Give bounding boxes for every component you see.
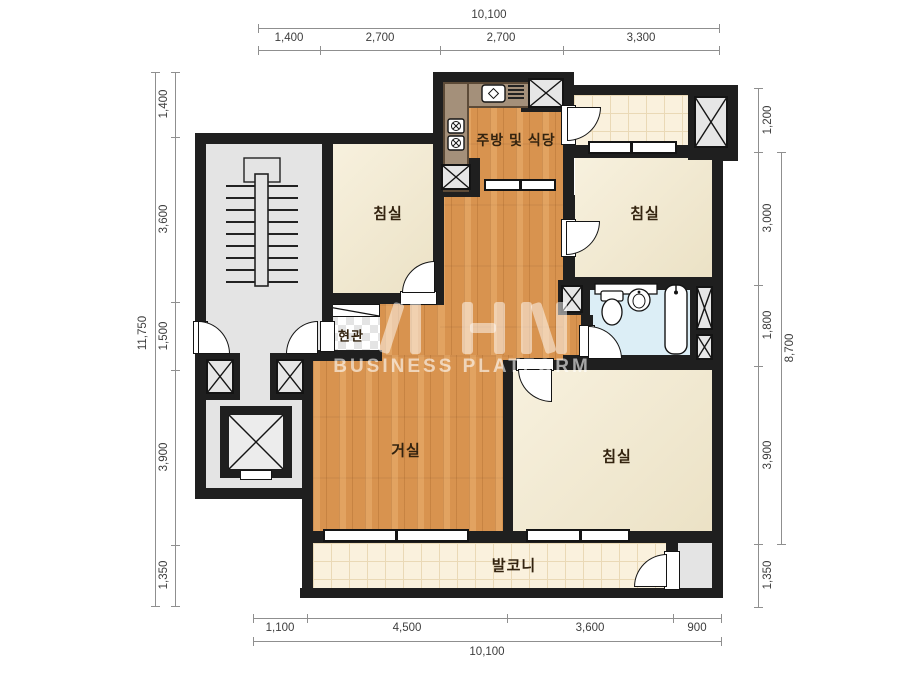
- wall: [712, 150, 723, 598]
- dim-top-2: 2,700: [487, 32, 516, 44]
- vent-icon: [508, 85, 524, 101]
- dim-bottom-3: 900: [687, 622, 706, 634]
- dimension-line: [758, 88, 759, 608]
- dim-right-3: 3,900: [762, 441, 774, 470]
- balcony-floor: [313, 543, 666, 588]
- dim-right-0: 1,200: [762, 106, 774, 135]
- dim-left-1: 3,600: [158, 205, 170, 234]
- dimension-line: [258, 28, 720, 29]
- bathtub-icon: [665, 285, 687, 354]
- dim-top-1: 2,700: [366, 32, 395, 44]
- balcony-label: 발코니: [492, 555, 536, 576]
- window: [396, 529, 469, 542]
- watermark-logo-stroke: [470, 323, 496, 333]
- stairs-icon: [224, 152, 300, 292]
- dim-bottom-2: 3,600: [576, 622, 605, 634]
- dim-bottom-0: 1,100: [266, 622, 295, 634]
- stove-icon: [447, 118, 465, 152]
- dim-left-4: 1,350: [158, 561, 170, 590]
- tick: [563, 46, 564, 55]
- bedroom-top-right-label: 침실: [630, 203, 660, 224]
- kitchen-label: 주방 및 식당: [476, 130, 555, 150]
- dimension-line: [253, 641, 722, 642]
- tick: [754, 544, 763, 545]
- dim-right-2: 1,800: [762, 311, 774, 340]
- dim-bottom-1: 4,500: [393, 622, 422, 634]
- tick: [171, 545, 180, 546]
- shaft-x-icon: [441, 164, 471, 190]
- ac-unit-floor: [678, 543, 712, 588]
- tick: [171, 302, 180, 303]
- tick: [440, 46, 441, 55]
- tick: [320, 46, 321, 55]
- shaft-x-icon: [696, 286, 713, 330]
- window: [588, 141, 632, 154]
- kitchen-sink-icon: [481, 84, 506, 103]
- dim-left-0: 1,400: [158, 90, 170, 119]
- dimension-line: [781, 152, 782, 544]
- window: [631, 141, 677, 154]
- wall: [322, 133, 444, 144]
- dim-bottom-total: 10,100: [469, 646, 504, 658]
- window: [580, 529, 630, 542]
- dim-left-2: 1,500: [158, 322, 170, 351]
- tick: [721, 614, 722, 623]
- wall: [563, 195, 575, 221]
- dim-right-1: 3,000: [762, 204, 774, 233]
- tick: [754, 152, 763, 153]
- door-threshold: [320, 321, 335, 352]
- dimension-line: [258, 50, 720, 51]
- watermark-logo-stroke: [494, 302, 505, 354]
- bedroom-bottom-label: 침실: [602, 446, 632, 467]
- entrance-label: 현관: [338, 326, 364, 345]
- tick: [253, 614, 254, 623]
- tick: [258, 46, 259, 55]
- shaft-x-icon: [206, 359, 234, 394]
- dim-top-3: 3,300: [627, 32, 656, 44]
- tick: [777, 544, 786, 545]
- tick: [253, 637, 254, 646]
- watermark-text: BUSINESS PLATFORM: [333, 356, 591, 378]
- floor-plan: BUSINESS PLATFORM 주방 및 식당 침실 침실 현관 거실 침실…: [0, 0, 923, 676]
- wall: [300, 588, 723, 598]
- window: [526, 529, 581, 542]
- bedroom-top-left-label: 침실: [373, 203, 403, 224]
- tick: [719, 24, 720, 33]
- watermark-logo-stroke: [410, 302, 421, 354]
- tick: [754, 366, 763, 367]
- living-room-label: 거실: [391, 440, 421, 461]
- tick: [258, 24, 259, 33]
- tick: [307, 614, 308, 623]
- tick: [754, 88, 763, 89]
- tick: [721, 637, 722, 646]
- tick: [754, 285, 763, 286]
- dim-top-total: 10,100: [471, 9, 506, 21]
- watermark-logo-stroke: [556, 302, 567, 354]
- dim-top-0: 1,400: [275, 32, 304, 44]
- tick: [673, 614, 674, 623]
- kitchen-pass-opening: [484, 179, 521, 191]
- tick: [777, 152, 786, 153]
- dimension-line: [155, 72, 156, 607]
- toilet-bowl-icon: [602, 299, 622, 325]
- tick: [507, 614, 508, 623]
- watermark-logo-stroke: [521, 302, 532, 354]
- shaft-x-icon: [528, 78, 564, 108]
- dimension-line: [175, 72, 176, 607]
- shaft-x-icon: [696, 334, 713, 360]
- bathroom-fixtures: [593, 283, 697, 357]
- tick: [171, 606, 180, 607]
- dim-right-total: 8,700: [784, 334, 796, 363]
- shaft-x-icon: [694, 96, 728, 148]
- dim-right-4: 1,350: [762, 561, 774, 590]
- wall: [322, 293, 402, 304]
- tick: [171, 137, 180, 138]
- tick: [719, 46, 720, 55]
- window: [323, 529, 397, 542]
- shaft-x-icon: [276, 359, 304, 394]
- wall: [503, 360, 513, 538]
- wall: [195, 488, 311, 499]
- elevator-door: [240, 470, 272, 480]
- tick: [151, 72, 160, 73]
- wall: [195, 133, 335, 144]
- tick: [171, 370, 180, 371]
- elevator-icon: [229, 415, 283, 469]
- dim-left-total: 11,750: [137, 316, 149, 350]
- dim-left-3: 3,900: [158, 443, 170, 472]
- tick: [171, 72, 180, 73]
- wall: [195, 133, 206, 321]
- tick: [754, 607, 763, 608]
- kitchen-pass-opening: [520, 179, 556, 191]
- dimension-line: [253, 618, 722, 619]
- tick: [151, 606, 160, 607]
